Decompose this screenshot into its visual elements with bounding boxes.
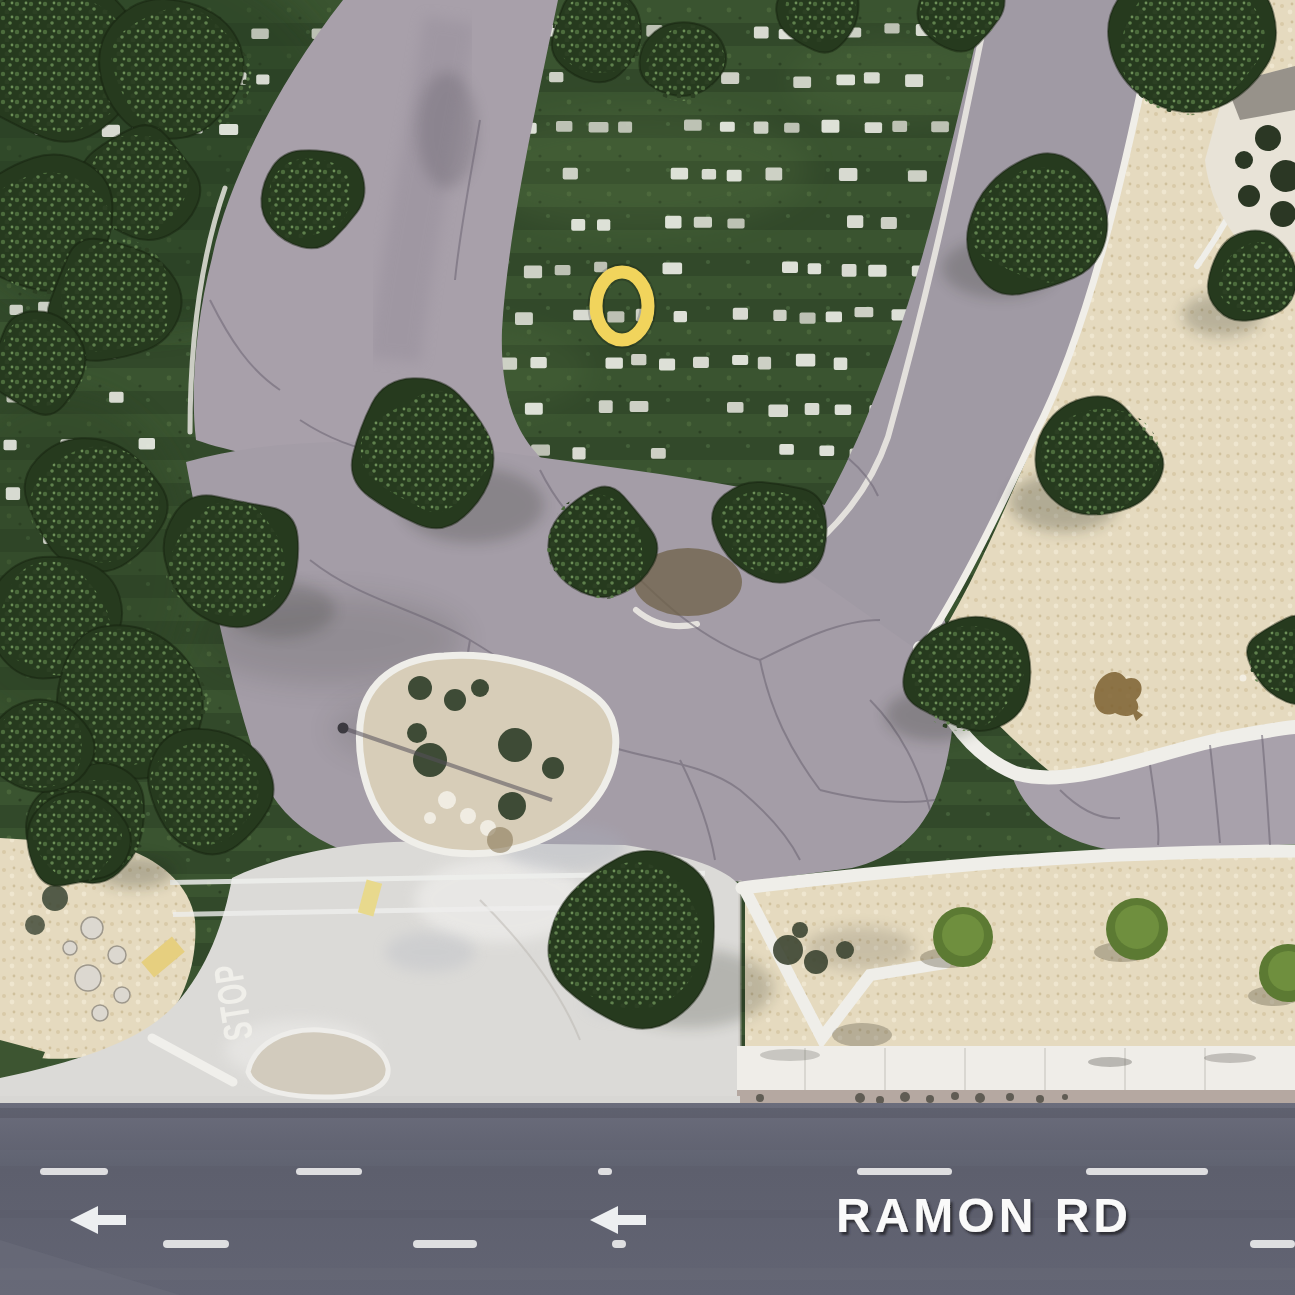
headstone bbox=[868, 265, 886, 277]
headstone bbox=[727, 402, 744, 413]
headstone bbox=[834, 358, 848, 371]
headstone bbox=[826, 312, 842, 323]
headstone bbox=[908, 170, 927, 182]
headstone bbox=[251, 29, 268, 39]
headstone bbox=[606, 357, 623, 368]
aerial-imagery: RAMON RD STOP bbox=[0, 0, 1295, 1295]
headstone bbox=[524, 266, 542, 279]
headstone bbox=[549, 72, 563, 82]
headstone bbox=[847, 215, 863, 228]
headstone bbox=[6, 487, 20, 500]
road-name-label: RAMON RD bbox=[836, 1189, 1132, 1242]
headstone bbox=[768, 404, 788, 417]
headstone bbox=[139, 438, 155, 449]
headstone bbox=[684, 120, 702, 131]
satellite-map-view[interactable]: RAMON RD STOP bbox=[0, 0, 1295, 1295]
headstone bbox=[631, 354, 646, 365]
headstone bbox=[835, 405, 852, 416]
headstone bbox=[884, 23, 899, 33]
headstone bbox=[651, 448, 666, 459]
headstone bbox=[219, 124, 238, 135]
headstone bbox=[796, 354, 815, 367]
headstone bbox=[842, 264, 857, 277]
headstone bbox=[727, 218, 744, 228]
headstone bbox=[659, 359, 675, 371]
headstone bbox=[773, 310, 786, 321]
headstone bbox=[822, 120, 840, 133]
headstone bbox=[793, 76, 811, 88]
headstone bbox=[732, 355, 748, 365]
headstone bbox=[931, 121, 949, 132]
lane-dash bbox=[857, 1168, 952, 1175]
headstone bbox=[515, 312, 533, 325]
headstone bbox=[819, 446, 834, 456]
headstone bbox=[597, 219, 610, 231]
headstone bbox=[630, 401, 649, 412]
headstone bbox=[563, 168, 578, 180]
headstone bbox=[836, 75, 855, 86]
headstone bbox=[808, 263, 821, 274]
lane-dash bbox=[598, 1168, 612, 1175]
headstone bbox=[702, 169, 716, 180]
median-island bbox=[248, 1030, 388, 1097]
headstone bbox=[256, 75, 269, 85]
headstone bbox=[754, 26, 769, 38]
lane-dash bbox=[40, 1168, 108, 1175]
headstone bbox=[599, 400, 613, 413]
lane-dash bbox=[612, 1240, 626, 1248]
headstone bbox=[665, 216, 681, 229]
headstone bbox=[766, 168, 783, 181]
headstone bbox=[674, 311, 687, 322]
headstone bbox=[784, 123, 799, 133]
headstone bbox=[881, 217, 897, 229]
headstone bbox=[754, 122, 769, 134]
headstone bbox=[779, 444, 794, 455]
headstone bbox=[671, 168, 688, 180]
headstone bbox=[905, 74, 923, 87]
light-pole bbox=[338, 723, 349, 734]
headstone bbox=[892, 121, 907, 132]
headstone bbox=[607, 311, 624, 322]
headstone bbox=[839, 168, 858, 181]
headstone bbox=[721, 72, 739, 84]
headstone bbox=[109, 392, 124, 403]
headstone bbox=[720, 122, 735, 132]
headstone bbox=[693, 357, 709, 368]
headstone bbox=[4, 440, 17, 450]
headstone bbox=[525, 403, 543, 415]
headstone bbox=[555, 265, 571, 275]
headstone bbox=[556, 121, 572, 132]
headstone bbox=[800, 313, 816, 324]
lane-dash bbox=[1250, 1240, 1295, 1248]
headstone bbox=[865, 122, 882, 133]
headstone bbox=[694, 217, 712, 228]
lane-dash bbox=[413, 1240, 477, 1248]
headstone bbox=[571, 219, 585, 231]
headstone bbox=[530, 357, 546, 368]
headstone bbox=[782, 262, 798, 274]
headstone bbox=[572, 447, 585, 459]
headstone bbox=[618, 122, 632, 133]
lane-dash bbox=[1086, 1168, 1208, 1175]
ramon-road: RAMON RD bbox=[0, 1103, 1295, 1295]
tree-canopy-texture bbox=[0, 703, 81, 788]
headstone bbox=[855, 307, 874, 317]
lane-dash bbox=[296, 1168, 362, 1175]
headstone bbox=[663, 262, 683, 274]
lane-dash bbox=[163, 1240, 229, 1248]
headstone bbox=[864, 72, 880, 83]
headstone bbox=[727, 170, 742, 182]
headstone bbox=[589, 122, 609, 133]
headstone bbox=[733, 308, 748, 320]
headstone bbox=[758, 357, 771, 370]
headstone bbox=[805, 403, 820, 415]
